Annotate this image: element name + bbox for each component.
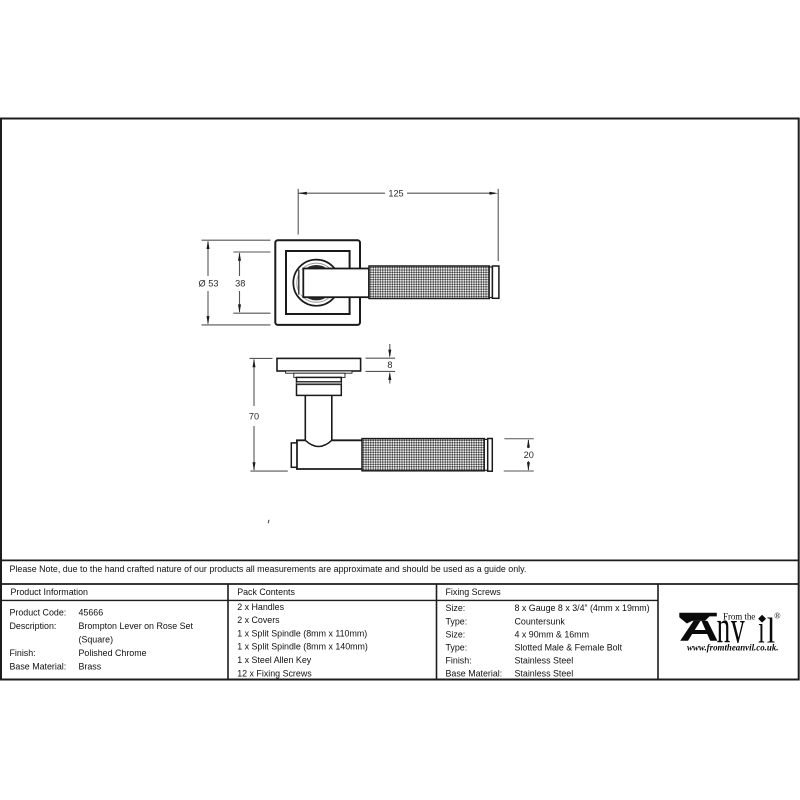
svg-text:1 x Steel Allen Key: 1 x Steel Allen Key [237, 655, 312, 665]
svg-text:Size:: Size: [446, 603, 466, 613]
svg-text:www.fromtheanvil.co.uk.: www.fromtheanvil.co.uk. [687, 642, 779, 653]
svg-text:45666: 45666 [79, 608, 104, 618]
svg-text:Pack Contents: Pack Contents [237, 587, 295, 597]
svg-text:Polished Chrome: Polished Chrome [79, 648, 147, 658]
svg-text:Fixing Screws: Fixing Screws [446, 587, 502, 597]
svg-text:38: 38 [235, 279, 245, 289]
svg-text:Stainless Steel: Stainless Steel [515, 669, 574, 679]
svg-text:Brass: Brass [79, 661, 102, 671]
svg-text:Product Information: Product Information [11, 587, 89, 597]
svg-text:4 x 90mm & 16mm: 4 x 90mm & 16mm [515, 629, 589, 639]
svg-text:1 x Split Spindle (8mm x 140mm: 1 x Split Spindle (8mm x 140mm) [237, 642, 368, 652]
svg-text:Please Note, due to the hand c: Please Note, due to the hand crafted nat… [10, 564, 527, 574]
svg-text:Slotted Male & Female Bolt: Slotted Male & Female Bolt [515, 642, 623, 652]
svg-text:8 x Gauge 8 x 3/4” (4mm x 19mm: 8 x Gauge 8 x 3/4” (4mm x 19mm) [515, 603, 650, 613]
svg-text:Type:: Type: [446, 616, 468, 626]
svg-text:Product Code:: Product Code: [10, 608, 67, 618]
svg-text:(Square): (Square) [79, 635, 114, 645]
svg-text:Description:: Description: [10, 621, 57, 631]
svg-text:Countersunk: Countersunk [515, 616, 566, 626]
svg-text:125: 125 [388, 189, 403, 199]
svg-text:Base Material:: Base Material: [446, 669, 503, 679]
svg-text:2 x Covers: 2 x Covers [237, 615, 280, 625]
svg-text:Size:: Size: [446, 629, 466, 639]
svg-text:2 x Handles: 2 x Handles [237, 602, 284, 612]
svg-text:®: ® [774, 611, 781, 620]
svg-text:Type:: Type: [446, 642, 468, 652]
svg-text:20: 20 [524, 450, 534, 460]
svg-text:Stainless Steel: Stainless Steel [515, 655, 574, 665]
svg-text:12 x Fixing Screws: 12 x Fixing Screws [237, 668, 312, 678]
svg-text:70: 70 [249, 412, 259, 422]
svg-text:8: 8 [387, 360, 392, 370]
svg-text:Finish:: Finish: [446, 655, 472, 665]
svg-text:1 x Split Spindle (8mm x 110mm: 1 x Split Spindle (8mm x 110mm) [237, 628, 367, 638]
svg-text:Base Material:: Base Material: [10, 661, 67, 671]
svg-text:Ø 53: Ø 53 [199, 279, 219, 289]
svg-text:Brompton Lever on Rose Set: Brompton Lever on Rose Set [79, 621, 194, 631]
svg-text:Finish:: Finish: [10, 648, 36, 658]
